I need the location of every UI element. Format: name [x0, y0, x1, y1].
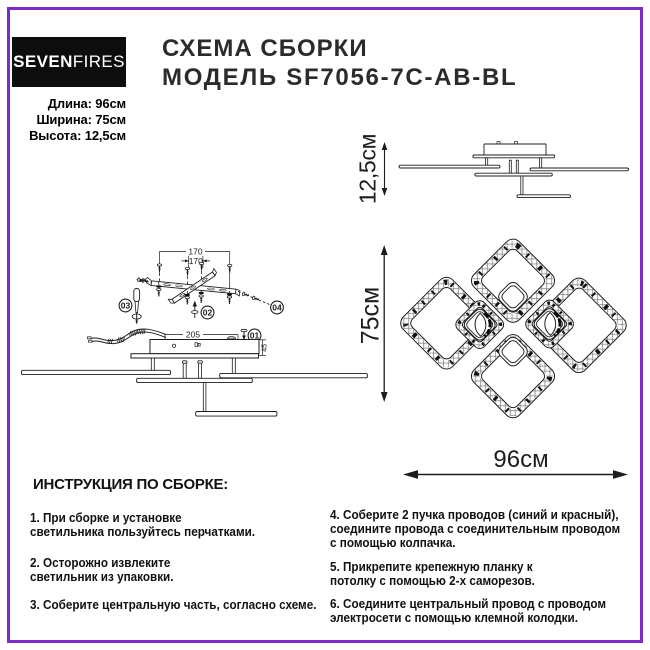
svg-text:03: 03 — [121, 301, 131, 311]
svg-text:205: 205 — [186, 330, 200, 340]
svg-text:45: 45 — [262, 344, 269, 352]
svg-text:96см: 96см — [493, 446, 548, 473]
svg-text:04: 04 — [272, 303, 282, 313]
svg-text:02: 02 — [203, 308, 213, 318]
svg-text:12,5см: 12,5см — [355, 134, 381, 204]
